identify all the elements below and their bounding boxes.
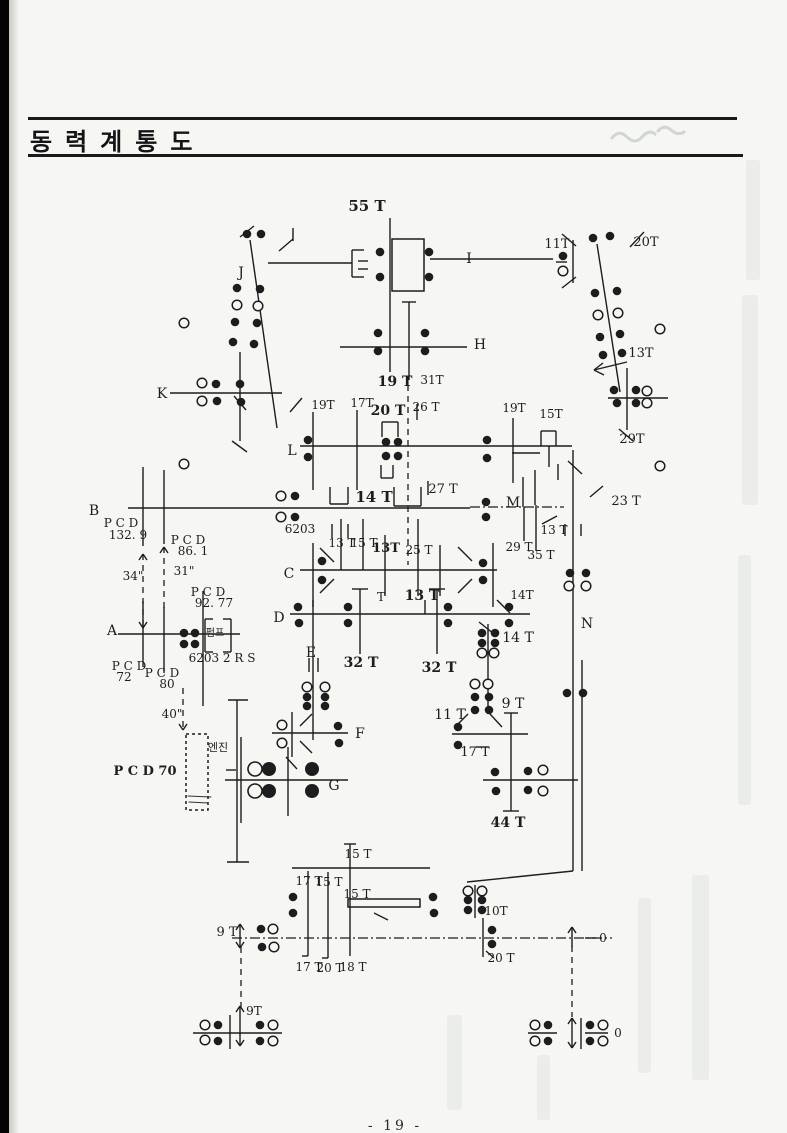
- bearing-dot: [294, 603, 303, 612]
- diagram-label: H: [474, 337, 486, 353]
- diagram-label: 26 T: [412, 400, 439, 414]
- bearing-dot: [344, 619, 353, 628]
- shaft-line: [458, 579, 472, 593]
- bearing-dot: [394, 452, 403, 461]
- bearing-dot: [344, 603, 353, 612]
- diagram-label: 11 T: [434, 707, 466, 723]
- bearing-dot: [335, 739, 344, 748]
- bearing-dot: [479, 559, 488, 568]
- diagram-label: 0: [599, 931, 607, 945]
- bearing-dot: [488, 940, 497, 949]
- bearing-ring: [197, 378, 207, 388]
- bearing-dot: [233, 284, 242, 293]
- bearing-ring: [489, 648, 499, 658]
- bearing-dot: [243, 230, 252, 239]
- diagram-label: 15 T: [344, 847, 371, 861]
- bearing-dot: [236, 380, 245, 389]
- bearing-dot: [334, 722, 343, 731]
- diagram-label: 20T: [633, 235, 659, 250]
- bearing-dot: [374, 329, 383, 338]
- diagram-label: 13T: [372, 541, 400, 556]
- diagram-label: F: [355, 726, 365, 742]
- bearing-ring: [197, 396, 207, 406]
- bearing-dot: [586, 1037, 595, 1046]
- bearing-ring: [277, 738, 287, 748]
- bearing-ring: [655, 324, 665, 334]
- bearing-dot: [478, 896, 487, 905]
- bearing-dot: [559, 252, 568, 261]
- bearing-dot: [491, 639, 500, 648]
- bearing-dot: [610, 386, 619, 395]
- diagram-label: 15T: [539, 407, 562, 421]
- bearing-dot: [291, 492, 300, 501]
- diagram-label: L: [287, 443, 296, 459]
- bearing-dot: [471, 706, 480, 715]
- diagram-label: 35 T: [527, 548, 554, 562]
- shaft-line: [250, 240, 277, 428]
- bearing-ring: [613, 308, 623, 318]
- bearing-ring: [530, 1036, 540, 1046]
- diagram-label: 15 T: [315, 875, 342, 889]
- diagram-label: A: [106, 623, 118, 639]
- bearing-dot: [616, 330, 625, 339]
- bearing-dot: [471, 693, 480, 702]
- diagram-label: 19T: [502, 401, 525, 415]
- diagram-label: 13 T: [540, 523, 567, 537]
- diagram-label: 9 T: [502, 696, 525, 712]
- bearing-dot: [618, 349, 627, 358]
- diagram-label: 25 T: [405, 543, 432, 557]
- scribble-mark: [612, 132, 655, 141]
- diagram-label: 40": [162, 707, 183, 721]
- bearing-dot: [191, 640, 200, 649]
- ghost-print: [537, 1055, 550, 1120]
- bearing-dot: [304, 436, 313, 445]
- bearing-ring: [477, 648, 487, 658]
- bearing-dot: [304, 453, 313, 462]
- shaft-line: [467, 871, 573, 882]
- bearing-ring: [276, 491, 286, 501]
- diagram-label: 34": [123, 569, 144, 583]
- diagram-label: 132. 9: [109, 528, 147, 542]
- bearing-dot: [256, 285, 265, 294]
- ghost-print: [638, 898, 651, 1073]
- diagram-label: K: [157, 386, 168, 402]
- bearing-ring: [200, 1035, 210, 1045]
- bearing-dot: [318, 576, 327, 585]
- bearing-dot-large: [305, 784, 319, 798]
- bearing-dot: [544, 1037, 553, 1046]
- bearing-ring: [655, 461, 665, 471]
- bearing-ring: [593, 310, 603, 320]
- bearing-dot: [256, 1037, 265, 1046]
- bearing-dot: [321, 702, 330, 711]
- bearing-dot: [488, 926, 497, 935]
- bearing-ring: [268, 924, 278, 934]
- bearing-dot: [374, 347, 383, 356]
- ghost-print: [746, 160, 760, 280]
- diagram-label: 13 T: [405, 588, 440, 604]
- bearing-dot: [632, 386, 641, 395]
- diagram-label: 55 T: [348, 197, 386, 215]
- diagram-label: C: [284, 566, 295, 582]
- bearing-dot-large: [262, 762, 276, 776]
- gear-box: [392, 239, 424, 291]
- bearing-dot: [291, 513, 300, 522]
- ghost-print: [692, 875, 709, 1080]
- diagram-label: 29T: [619, 432, 645, 447]
- bearing-ring: [581, 581, 591, 591]
- diagram-label: E: [306, 645, 316, 661]
- diagram-label: 17 T: [460, 745, 490, 760]
- bearing-ring: [530, 1020, 540, 1030]
- bearing-dot: [425, 248, 434, 257]
- bearing-dot: [491, 629, 500, 638]
- bearing-ring: [558, 266, 568, 276]
- diagram-label: 20 T: [371, 403, 406, 419]
- shaft-line: [279, 239, 293, 251]
- bearing-ring: [470, 679, 480, 689]
- shaft-line: [290, 398, 302, 412]
- diagram-label: N: [581, 616, 593, 632]
- diagram-label: 92. 77: [195, 596, 233, 610]
- diagram-label: J: [236, 265, 244, 281]
- bearing-dot: [566, 569, 575, 578]
- bearing-ring: [253, 301, 263, 311]
- bearing-dot: [382, 452, 391, 461]
- bearing-dot: [444, 603, 453, 612]
- bearing-ring: [179, 459, 189, 469]
- bearing-dot: [429, 893, 438, 902]
- bearing-dot: [579, 689, 588, 698]
- diagram-label: 19 T: [378, 374, 413, 390]
- bearing-ring: [598, 1020, 608, 1030]
- diagram-label: 86. 1: [178, 544, 209, 558]
- bearing-dot: [376, 248, 385, 257]
- bearing-ring: [483, 679, 493, 689]
- shaft-line: [300, 741, 312, 753]
- diagram-label: 펌프: [206, 627, 224, 639]
- bearing-ring: [477, 886, 487, 896]
- diagram-label: 9 T: [216, 925, 237, 940]
- diagram-label: 31T: [420, 373, 443, 387]
- bearing-dot: [524, 767, 533, 776]
- shaft-line: [568, 461, 582, 474]
- bearing-dot: [596, 333, 605, 342]
- bearing-dot: [589, 234, 598, 243]
- bearing-dot: [613, 287, 622, 296]
- bearing-dot: [444, 619, 453, 628]
- powertrain-diagram: 55 TI11T20TJHK13T29T19 T31T19T17T20 T26 …: [0, 0, 787, 1133]
- diagram-label: 27 T: [428, 482, 458, 497]
- bearing-dot: [258, 943, 267, 952]
- diagram-label: 11T: [544, 237, 570, 252]
- bearing-dot: [563, 689, 572, 698]
- diagram-label: 14 T: [502, 630, 534, 646]
- diagram-label: 20 T: [487, 951, 514, 965]
- diagram-label: 80: [159, 677, 174, 691]
- diagram-label: G: [328, 778, 339, 794]
- bearing-dot: [591, 289, 600, 298]
- bearing-ring: [564, 581, 574, 591]
- scanned-page: 동력계통도 55 TI11T20TJHK13T29T19 T31T19T17T2…: [0, 0, 787, 1133]
- bearing-ring: [268, 1020, 278, 1030]
- bearing-dot: [464, 896, 473, 905]
- bearing-dot: [599, 351, 608, 360]
- bearing-dot: [295, 619, 304, 628]
- bearing-dot: [250, 340, 259, 349]
- bearing-dot: [478, 629, 487, 638]
- bearing-dot-large: [262, 784, 276, 798]
- bearing-dot: [478, 639, 487, 648]
- bearing-dot: [191, 629, 200, 638]
- bearing-dot: [430, 909, 439, 918]
- shaft-line: [490, 714, 502, 727]
- bearing-ring-large: [248, 762, 262, 776]
- diagram-label: 15 T: [343, 887, 370, 901]
- bearing-ring: [598, 1036, 608, 1046]
- bearing-dot: [256, 1021, 265, 1030]
- diagram-label: 18 T: [339, 960, 366, 974]
- bearing-ring: [269, 942, 279, 952]
- scribble-mark: [658, 127, 684, 133]
- bearing-ring-large: [248, 784, 262, 798]
- ghost-print: [738, 555, 751, 805]
- page-number: - 19 -: [340, 1118, 450, 1133]
- bearing-dot: [485, 693, 494, 702]
- bearing-dot: [613, 399, 622, 408]
- bearing-ring: [302, 682, 312, 692]
- diagram-label: 14T: [510, 588, 533, 602]
- diagram-label: 6203 2 R S: [189, 651, 256, 665]
- diagram-label: 32 T: [344, 655, 379, 671]
- bearing-dot: [586, 1021, 595, 1030]
- bearing-dot: [524, 786, 533, 795]
- bearing-ring: [642, 398, 652, 408]
- diagram-label: 6203: [285, 522, 316, 536]
- engine-box: [186, 734, 208, 810]
- shaft-line: [374, 913, 388, 920]
- bearing-ring: [463, 886, 473, 896]
- diagram-label: T: [377, 590, 385, 604]
- bearing-dot: [180, 640, 189, 649]
- scribble-mark: [188, 796, 211, 803]
- bearing-ring: [538, 786, 548, 796]
- bearing-dot: [257, 925, 266, 934]
- bearing-dot: [464, 906, 473, 915]
- shaft-line: [232, 441, 247, 452]
- bearing-dot: [582, 569, 591, 578]
- bearing-ring: [232, 300, 242, 310]
- bearing-dot: [421, 329, 430, 338]
- bearing-dot: [505, 619, 514, 628]
- shaft-line: [562, 277, 576, 288]
- bearing-dot: [425, 273, 434, 282]
- bearing-dot: [303, 702, 312, 711]
- bearing-dot: [483, 454, 492, 463]
- diagram-label: P C D 70: [113, 764, 176, 779]
- shaft-line: [300, 714, 312, 726]
- bearing-ring: [320, 682, 330, 692]
- bearing-ring: [179, 318, 189, 328]
- shaft-line: [590, 486, 603, 497]
- diagram-label: I: [466, 251, 472, 267]
- bearing-dot: [229, 338, 238, 347]
- diagram-label: 10T: [484, 904, 507, 918]
- bearing-dot: [491, 768, 500, 777]
- bearing-dot: [632, 399, 641, 408]
- bearing-dot: [237, 398, 246, 407]
- bearing-dot: [421, 347, 430, 356]
- diagram-label: 44 T: [491, 815, 526, 831]
- bearing-dot: [479, 576, 488, 585]
- diagram-label: 32 T: [422, 660, 457, 676]
- diagram-label: 72: [116, 670, 131, 684]
- diagram-label: 엔진: [208, 741, 228, 754]
- bearing-ring: [268, 1036, 278, 1046]
- bearing-ring: [276, 512, 286, 522]
- bearing-dot: [180, 629, 189, 638]
- bearing-dot: [303, 693, 312, 702]
- bearing-dot: [382, 438, 391, 447]
- shaft-line: [594, 370, 604, 375]
- bearing-dot: [318, 557, 327, 566]
- bearing-dot: [214, 1021, 223, 1030]
- diagram-label: 19T: [311, 398, 334, 412]
- diagram-label: 31": [174, 564, 195, 578]
- bearing-dot: [482, 513, 491, 522]
- bearing-ring: [277, 720, 287, 730]
- bearing-dot: [289, 893, 298, 902]
- bearing-dot-large: [305, 762, 319, 776]
- bearing-dot: [485, 706, 494, 715]
- bearing-dot: [376, 273, 385, 282]
- diagram-label: 9T: [246, 1004, 262, 1018]
- bearing-dot: [257, 230, 266, 239]
- bearing-dot: [213, 397, 222, 406]
- diagram-label: B: [89, 503, 99, 519]
- bearing-ring: [642, 386, 652, 396]
- ghost-print: [447, 1015, 462, 1110]
- bearing-dot: [394, 438, 403, 447]
- bearing-dot: [214, 1037, 223, 1046]
- bearing-dot: [505, 603, 514, 612]
- bearing-dot: [544, 1021, 553, 1030]
- bearing-dot: [606, 232, 615, 241]
- bearing-dot: [321, 693, 330, 702]
- ghost-print: [742, 295, 758, 505]
- diagram-label: 0: [614, 1026, 622, 1040]
- bearing-dot: [482, 498, 491, 507]
- shaft-line: [458, 547, 472, 561]
- diagram-label: M: [506, 495, 520, 511]
- bearing-dot: [231, 318, 240, 327]
- diagram-label: 13T: [628, 346, 654, 361]
- bearing-ring: [538, 765, 548, 775]
- bearing-ring: [200, 1020, 210, 1030]
- bearing-dot: [483, 436, 492, 445]
- diagram-label: 14 T: [355, 488, 393, 506]
- bearing-dot: [492, 787, 501, 796]
- bearing-dot: [454, 723, 463, 732]
- diagram-label: D: [273, 610, 284, 626]
- bearing-dot: [289, 909, 298, 918]
- bearing-dot: [212, 380, 221, 389]
- diagram-label: 23 T: [611, 494, 641, 509]
- bearing-dot: [253, 319, 262, 328]
